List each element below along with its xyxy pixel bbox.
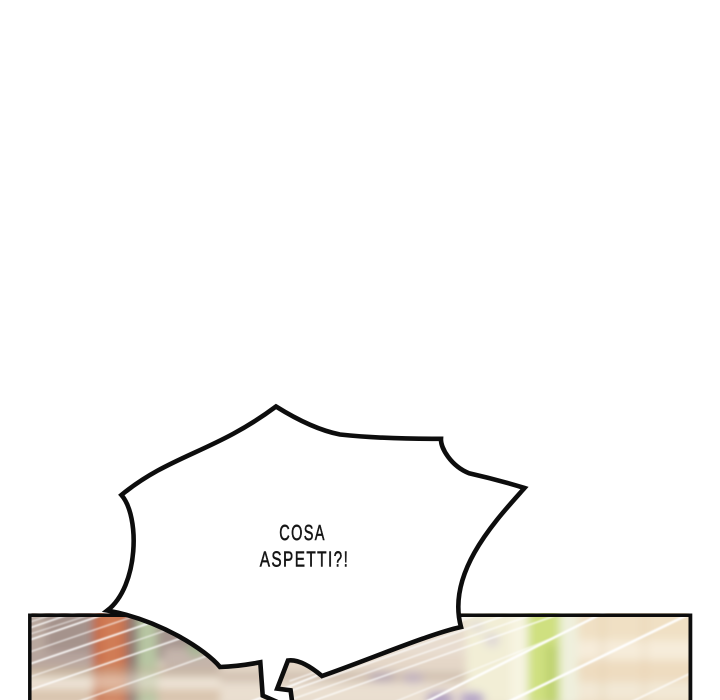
- svg-text:ASPETTI?!: ASPETTI?!: [260, 546, 350, 571]
- svg-text:COSA: COSA: [279, 520, 326, 545]
